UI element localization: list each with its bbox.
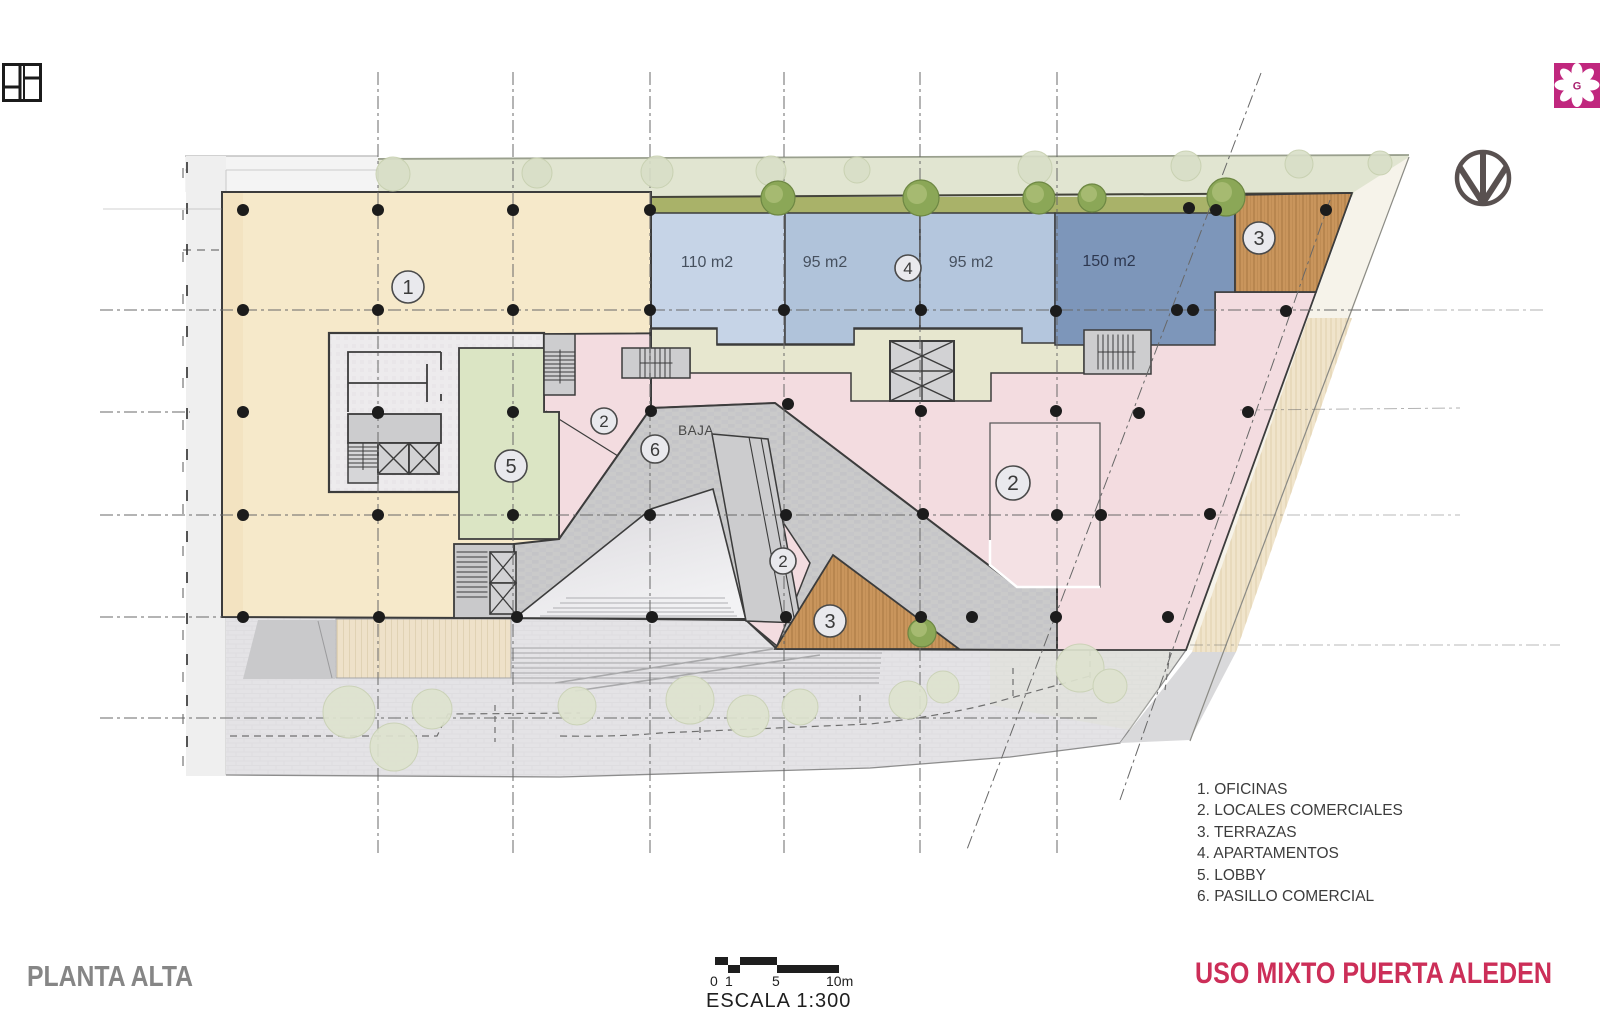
svg-text:ESCALA 1:300: ESCALA 1:300 (706, 990, 851, 1012)
svg-text:5: 5 (772, 973, 780, 989)
svg-text:2: 2 (1007, 472, 1019, 495)
svg-text:2. LOCALES COMERCIALES: 2. LOCALES COMERCIALES (1197, 802, 1403, 819)
svg-text:4. APARTAMENTOS: 4. APARTAMENTOS (1197, 845, 1339, 862)
svg-text:95 m2: 95 m2 (803, 254, 848, 271)
svg-text:110 m2: 110 m2 (681, 254, 733, 271)
svg-text:2: 2 (599, 412, 608, 431)
svg-text:G: G (1573, 81, 1582, 93)
svg-text:5: 5 (505, 456, 516, 478)
svg-text:BAJA: BAJA (678, 423, 714, 438)
svg-text:USO MIXTO PUERTA ALEDEN: USO MIXTO PUERTA ALEDEN (1195, 957, 1552, 990)
svg-text:4: 4 (903, 259, 912, 278)
svg-text:6. PASILLO COMERCIAL: 6. PASILLO COMERCIAL (1197, 888, 1375, 905)
svg-text:6: 6 (650, 440, 660, 460)
svg-text:0: 0 (710, 973, 718, 989)
svg-text:150 m2: 150 m2 (1082, 253, 1135, 270)
svg-text:1. OFICINAS: 1. OFICINAS (1197, 781, 1287, 798)
svg-text:3: 3 (824, 611, 835, 633)
svg-text:1: 1 (402, 277, 413, 299)
svg-text:5. LOBBY: 5. LOBBY (1197, 867, 1266, 884)
svg-text:10m: 10m (826, 973, 853, 989)
svg-text:PLANTA ALTA: PLANTA ALTA (27, 961, 193, 993)
svg-text:2: 2 (778, 552, 787, 571)
svg-text:95 m2: 95 m2 (949, 254, 994, 271)
svg-text:3. TERRAZAS: 3. TERRAZAS (1197, 824, 1297, 841)
svg-text:1: 1 (725, 973, 733, 989)
svg-text:3: 3 (1253, 228, 1264, 250)
